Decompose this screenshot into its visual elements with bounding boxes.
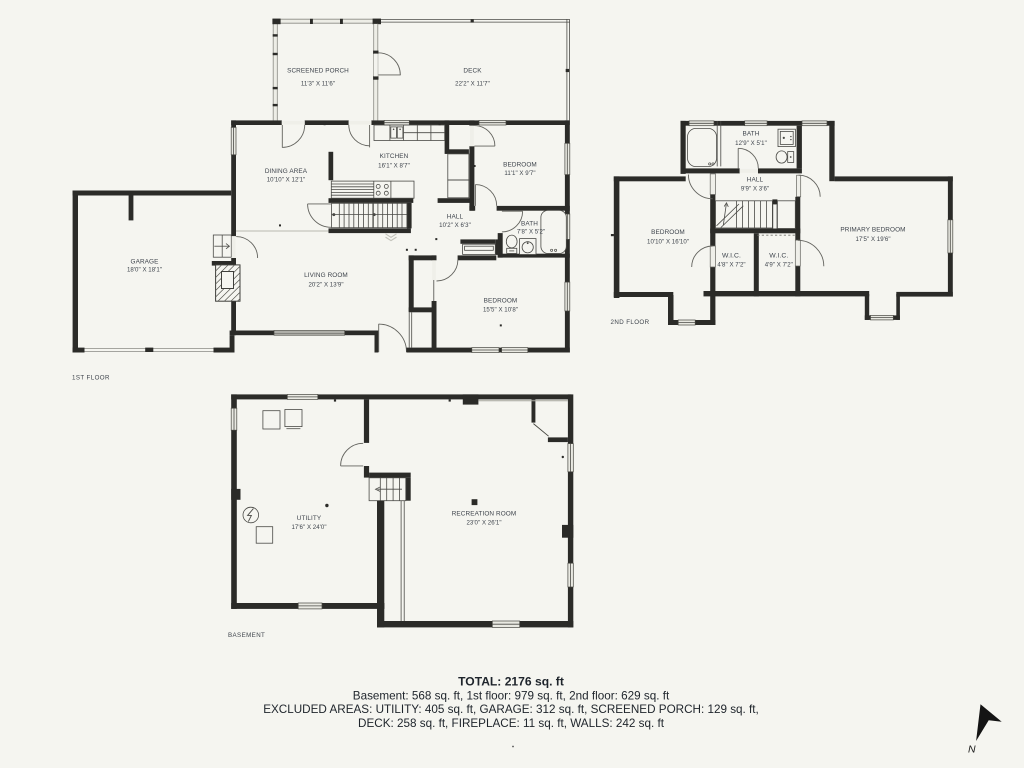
svg-text:PRIMARY BEDROOM: PRIMARY BEDROOM	[840, 226, 905, 233]
svg-text:RECREATION ROOM: RECREATION ROOM	[452, 510, 517, 517]
svg-text:15'5" X 10'8": 15'5" X 10'8"	[483, 307, 518, 314]
svg-text:4'8" X 7'2": 4'8" X 7'2"	[717, 261, 745, 268]
svg-text:2ND FLOOR: 2ND FLOOR	[611, 319, 650, 326]
svg-text:GARAGE: GARAGE	[131, 259, 159, 266]
svg-text:BATH: BATH	[743, 131, 760, 138]
svg-text:11'3" X 11'6": 11'3" X 11'6"	[301, 80, 335, 87]
svg-text:18'0" X 18'1": 18'0" X 18'1"	[127, 266, 162, 273]
svg-text:20'2" X 13'9": 20'2" X 13'9"	[308, 281, 343, 288]
svg-text:SCREENED PORCH: SCREENED PORCH	[287, 67, 349, 74]
svg-text:KITCHEN: KITCHEN	[380, 153, 409, 160]
svg-text:BATH: BATH	[521, 221, 538, 228]
svg-text:BEDROOM: BEDROOM	[503, 162, 537, 169]
svg-text:17'5" X 19'6": 17'5" X 19'6"	[855, 236, 890, 243]
svg-text:10'2" X 6'3": 10'2" X 6'3"	[439, 222, 471, 229]
svg-text:Basement: 568 sq. ft, 1st floo: Basement: 568 sq. ft, 1st floor: 979 sq.…	[353, 689, 670, 702]
svg-text:10'10" X 16'10": 10'10" X 16'10"	[647, 239, 689, 246]
svg-text:DECK: 258 sq. ft, FIREPLACE: 1: DECK: 258 sq. ft, FIREPLACE: 11 sq. ft, …	[358, 717, 665, 730]
svg-text:DINING AREA: DINING AREA	[265, 168, 308, 175]
svg-text:N: N	[968, 743, 976, 755]
svg-text:22'2" X 11'7": 22'2" X 11'7"	[455, 80, 490, 87]
svg-text:UTILITY: UTILITY	[297, 515, 322, 522]
svg-text:12'9" X 5'1": 12'9" X 5'1"	[735, 140, 767, 147]
svg-text:10'10" X 12'1": 10'10" X 12'1"	[267, 176, 306, 183]
svg-text:HALL: HALL	[447, 214, 464, 221]
svg-text:LIVING ROOM: LIVING ROOM	[304, 272, 348, 279]
svg-text:1ST FLOOR: 1ST FLOOR	[72, 375, 110, 382]
svg-text:17'6" X 24'0": 17'6" X 24'0"	[291, 524, 326, 531]
svg-text:W.I.C.: W.I.C.	[769, 252, 788, 259]
svg-text:EXCLUDED AREAS: UTILITY: 405 s: EXCLUDED AREAS: UTILITY: 405 sq. ft, GAR…	[263, 703, 759, 716]
svg-text:7'8" X 5'2": 7'8" X 5'2"	[517, 228, 545, 235]
svg-text:9'9" X 3'6": 9'9" X 3'6"	[741, 186, 769, 193]
svg-text:16'1" X 8'7": 16'1" X 8'7"	[378, 162, 410, 169]
svg-text:W.I.C.: W.I.C.	[722, 252, 741, 259]
svg-text:HALL: HALL	[747, 177, 764, 184]
svg-text:4'9" X 7'2": 4'9" X 7'2"	[765, 261, 793, 268]
svg-text:TOTAL: 2176 sq. ft: TOTAL: 2176 sq. ft	[458, 675, 564, 689]
svg-text:BASEMENT: BASEMENT	[228, 632, 265, 639]
svg-text:11'1" X 9'7": 11'1" X 9'7"	[504, 170, 535, 177]
svg-text:DECK: DECK	[463, 67, 482, 74]
svg-text:23'0" X 26'1": 23'0" X 26'1"	[466, 520, 501, 527]
svg-text:BEDROOM: BEDROOM	[651, 229, 685, 236]
svg-text:BEDROOM: BEDROOM	[484, 297, 518, 304]
